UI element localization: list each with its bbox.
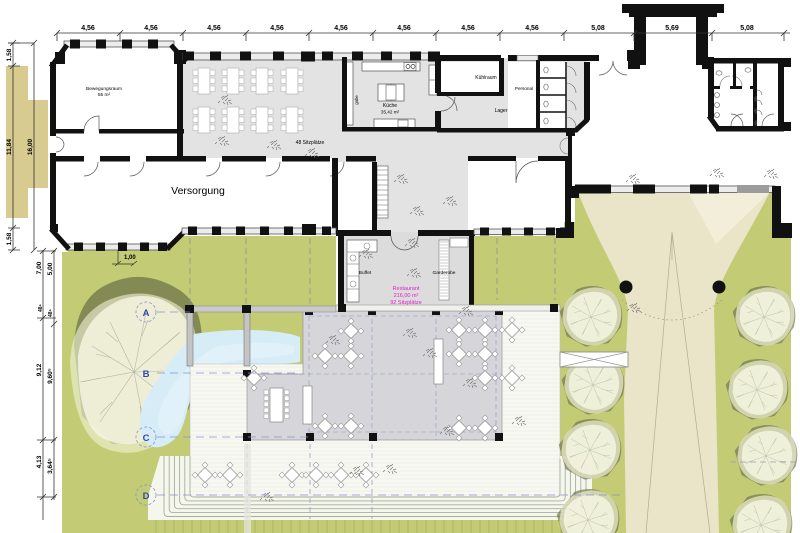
svg-text:gabe: gabe — [354, 95, 359, 105]
svg-text:C: C — [143, 433, 150, 444]
svg-text:4,56: 4,56 — [207, 25, 221, 32]
svg-text:A: A — [143, 308, 150, 319]
svg-text:5,08: 5,08 — [740, 25, 754, 32]
svg-text:Lager: Lager — [495, 108, 508, 114]
svg-text:4,56: 4,56 — [144, 25, 158, 32]
svg-text:4,56: 4,56 — [334, 25, 348, 32]
svg-text:35,42 m²: 35,42 m² — [381, 110, 400, 115]
svg-text:Bewegungsraum: Bewegungsraum — [86, 86, 122, 92]
svg-text:4,56: 4,56 — [397, 25, 411, 32]
svg-text:48 Sitzplätze: 48 Sitzplätze — [296, 140, 325, 146]
svg-text:16,00: 16,00 — [27, 138, 34, 155]
svg-text:216,00 m²: 216,00 m² — [394, 293, 419, 299]
svg-text:7,00: 7,00 — [36, 261, 43, 274]
svg-text:1,00: 1,00 — [124, 255, 136, 261]
svg-text:9,12: 9,12 — [36, 363, 43, 376]
svg-text:9,60⁵: 9,60⁵ — [47, 368, 54, 384]
svg-text:48⁵: 48⁵ — [48, 308, 54, 317]
svg-text:Restaurant: Restaurant — [393, 286, 420, 292]
svg-text:4,56: 4,56 — [525, 25, 539, 32]
svg-text:Küche: Küche — [383, 103, 397, 109]
svg-text:Kühlraum: Kühlraum — [475, 75, 496, 81]
svg-text:4,56: 4,56 — [461, 25, 475, 32]
svg-text:5,08: 5,08 — [591, 25, 605, 32]
svg-text:4,56: 4,56 — [270, 25, 284, 32]
svg-text:48⁵: 48⁵ — [38, 303, 44, 312]
svg-text:4,56: 4,56 — [81, 25, 95, 32]
svg-text:Personal: Personal — [515, 86, 533, 91]
svg-text:4,13: 4,13 — [36, 455, 43, 468]
svg-text:Garderobe: Garderobe — [433, 270, 456, 276]
svg-text:3,64⁵: 3,64⁵ — [47, 458, 54, 474]
svg-text:Buffet: Buffet — [359, 270, 372, 276]
svg-text:1,58: 1,58 — [6, 48, 13, 61]
svg-text:1,58: 1,58 — [6, 232, 13, 245]
svg-text:B: B — [143, 369, 150, 380]
svg-text:55 m²: 55 m² — [98, 92, 111, 98]
svg-text:Versorgung: Versorgung — [171, 185, 225, 197]
svg-text:5,00: 5,00 — [47, 262, 54, 275]
svg-text:5,69: 5,69 — [665, 25, 679, 32]
svg-text:11,84: 11,84 — [6, 139, 13, 155]
svg-text:D: D — [143, 491, 150, 502]
svg-text:92 Sitzplätze: 92 Sitzplätze — [390, 300, 422, 306]
